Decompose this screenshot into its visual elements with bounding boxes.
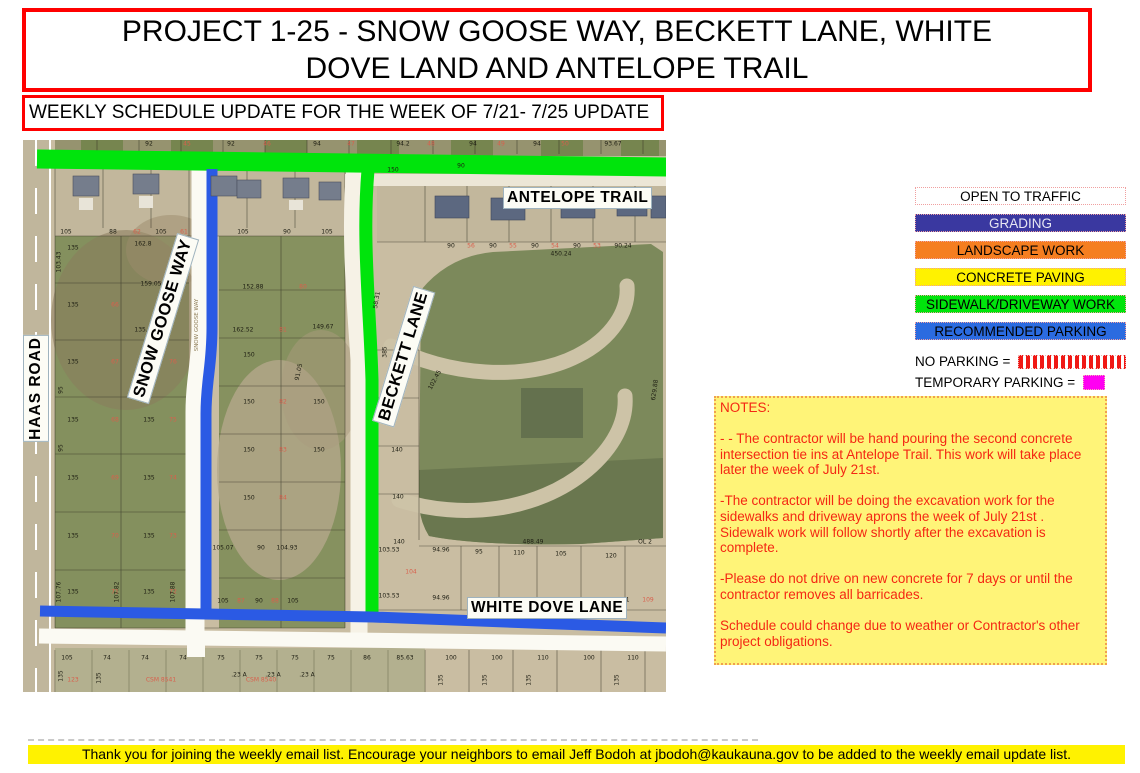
parcel-label: 135 (143, 533, 154, 540)
footer-divider (28, 739, 758, 741)
parcel-label: 84 (279, 495, 287, 502)
parcel-label: 75 (291, 655, 299, 662)
parcel-label: 105 (321, 229, 332, 236)
parcel-label: 47 (347, 141, 355, 148)
road-label-white-dove: WHITE DOVE LANE (467, 597, 627, 619)
parcel-label: 85.63 (396, 655, 413, 662)
project-map: 92929494.2949493.67454647484950105881051… (21, 140, 666, 692)
parcel-label: 50 (561, 141, 569, 148)
parcel-label: 75 (327, 655, 335, 662)
parcel-label: 100 (583, 655, 594, 662)
parcel-label: 94.96 (432, 595, 449, 602)
parcel-label: 140 (392, 494, 403, 501)
no-parking-swatch (1018, 355, 1126, 369)
parcel-label: 74 (103, 655, 111, 662)
parcel-label: SNOW GOOSE WAY (194, 299, 200, 352)
parcel-label: 135 (67, 359, 78, 366)
parcel-label: 75 (217, 655, 225, 662)
parcel-label: 94.96 (432, 547, 449, 554)
parcel-label: OL 2 (638, 539, 652, 546)
temporary-parking-swatch (1083, 375, 1105, 390)
note-paragraph: -Please do not drive on new concrete for… (720, 571, 1101, 603)
legend-item-label: GRADING (989, 216, 1052, 231)
parcel-label: 92 (227, 141, 235, 148)
parcel-label: 140 (393, 539, 404, 546)
parcel-label: 95 (58, 386, 65, 394)
note-paragraph: - - The contractor will be hand pouring … (720, 431, 1101, 478)
parcel-label: 104.93 (277, 545, 298, 552)
parcel-label: 86 (363, 655, 371, 662)
parcel-label: 88 (271, 598, 279, 605)
road-label-antelope: ANTELOPE TRAIL (503, 187, 652, 209)
parcel-label: 103.53 (379, 547, 400, 554)
parcel-label: 107.82 (114, 582, 121, 603)
parcel-label: 105 (60, 229, 71, 236)
parcel-label: 90 (489, 243, 497, 250)
parcel-label: 140 (391, 447, 402, 454)
parcel-label: 135 (67, 589, 78, 596)
parcel-label: 68 (111, 417, 119, 424)
parcel-label: 90.24 (614, 243, 631, 250)
parcel-label: 93.67 (604, 141, 621, 148)
parcel-label: 49 (497, 141, 505, 148)
parcel-label: 152.88 (243, 284, 264, 291)
parcel-label: 162.52 (233, 327, 254, 334)
parcel-label: 74 (169, 475, 177, 482)
parcel-label: 135 (67, 475, 78, 482)
parcel-label: 94 (533, 141, 541, 148)
parcel-label: 150 (243, 495, 254, 502)
parcel-label: 67 (111, 359, 119, 366)
parcel-label: 54 (551, 243, 559, 250)
parcel-label: 105 (217, 598, 228, 605)
title-banner: PROJECT 1-25 - SNOW GOOSE WAY, BECKETT L… (22, 8, 1092, 92)
parcel-label: 107.76 (56, 582, 63, 603)
parcel-label: 103.43 (56, 252, 63, 273)
parcel-label: 48 (427, 141, 435, 148)
parcel-label: .23 A (299, 672, 315, 679)
parcel-label: 53 (593, 243, 601, 250)
parcel-label: 135 (143, 475, 154, 482)
parcel-label: 90 (283, 229, 291, 236)
no-parking-label: NO PARKING = (915, 354, 1010, 369)
parcel-label: 102.45 (427, 369, 443, 391)
parcel-label: 83 (279, 447, 287, 454)
legend: OPEN TO TRAFFIC GRADING LANDSCAPE WORK C… (915, 187, 1126, 390)
footer-text: Thank you for joining the weekly email l… (82, 746, 1071, 762)
parcel-label: 135 (96, 672, 103, 683)
parcel-label: 94 (313, 141, 321, 148)
parcel-label: 81 (279, 327, 287, 334)
parcel-label: 159.05 (141, 281, 162, 288)
parcel-label: 135 (438, 674, 445, 685)
page-title: PROJECT 1-25 - SNOW GOOSE WAY, BECKETT L… (87, 13, 1027, 87)
parcel-label: 56 (467, 243, 475, 250)
parcel-label: 105.07 (213, 545, 234, 552)
parcel-label: 95 (475, 549, 483, 556)
parcel-label: 66 (111, 302, 119, 309)
legend-item: GRADING (915, 214, 1126, 232)
parking-legend: NO PARKING = TEMPORARY PARKING = (915, 354, 1126, 390)
parcel-label: 629.88 (650, 379, 660, 401)
parcel-label: 105 (555, 551, 566, 558)
parcel-label: 150 (243, 399, 254, 406)
parcel-label: 135 (67, 533, 78, 540)
parcel-label: 135 (482, 674, 489, 685)
parcel-label: 73 (169, 533, 177, 540)
parcel-label: 135 (614, 674, 621, 685)
parcel-label: 105 (61, 655, 72, 662)
parcel-label: 123 (67, 677, 78, 684)
parcel-label: 100 (491, 655, 502, 662)
parcel-label: 150 (313, 447, 324, 454)
temporary-parking-label: TEMPORARY PARKING = (915, 375, 1075, 390)
parcel-label: 74 (179, 655, 187, 662)
parcel-label: 103.53 (379, 593, 400, 600)
footer-banner: Thank you for joining the weekly email l… (28, 745, 1125, 764)
parcel-label: 105 (237, 229, 248, 236)
parcel-label: CSM 8541 (146, 677, 176, 684)
page: PROJECT 1-25 - SNOW GOOSE WAY, BECKETT L… (0, 0, 1140, 773)
legend-item: RECOMMENDED PARKING (915, 322, 1126, 340)
parcel-label: 385 (382, 346, 389, 357)
parcel-label: 135 (526, 674, 533, 685)
parcel-label: 110 (513, 550, 524, 557)
parcel-label: .23 A (231, 672, 247, 679)
parcel-label: 92 (145, 141, 153, 148)
parcel-label: 450.24 (551, 251, 572, 258)
parcel-label: 135 (143, 589, 154, 596)
parcel-label: 90 (447, 243, 455, 250)
subtitle-text: WEEKLY SCHEDULE UPDATE FOR THE WEEK OF 7… (29, 102, 649, 123)
subtitle-banner: WEEKLY SCHEDULE UPDATE FOR THE WEEK OF 7… (22, 95, 664, 131)
parcel-label: 110 (537, 655, 548, 662)
parcel-label: 90 (255, 598, 263, 605)
no-parking-row: NO PARKING = (915, 354, 1126, 369)
parcel-label: 135 (143, 417, 154, 424)
parcel-label: 94 (469, 141, 477, 148)
parcel-label: 58.31 (372, 291, 382, 309)
legend-item: CONCRETE PAVING (915, 268, 1126, 286)
parcel-label: 135 (58, 670, 65, 681)
parcel-label: 69 (111, 475, 119, 482)
parcel-label: 162.8 (134, 241, 151, 248)
parcel-label: 135 (67, 245, 78, 252)
parcel-label: 91.05 (294, 363, 304, 381)
parcel-label: 109 (642, 597, 653, 604)
parcel-label: 90 (257, 545, 265, 552)
parcel-label: 120 (605, 553, 616, 560)
parcel-label: 82 (279, 399, 287, 406)
parcel-label: 70 (111, 533, 119, 540)
parcel-label: 55 (509, 243, 517, 250)
notes-heading: NOTES: (720, 400, 1101, 416)
parcel-label: 110 (627, 655, 638, 662)
parcel-label: 488.49 (523, 539, 544, 546)
parcel-label: 150 (243, 447, 254, 454)
parcel-label: 90 (573, 243, 581, 250)
parcel-label: 107.88 (170, 582, 177, 603)
legend-items: OPEN TO TRAFFIC GRADING LANDSCAPE WORK C… (915, 187, 1126, 340)
parcel-label: 135 (67, 302, 78, 309)
legend-item: SIDEWALK/DRIVEWAY WORK (915, 295, 1126, 313)
parcel-label: 100 (445, 655, 456, 662)
legend-item: OPEN TO TRAFFIC (915, 187, 1126, 205)
notes-box: NOTES: - - The contractor will be hand p… (714, 396, 1107, 665)
road-label-haas: HAAS ROAD (23, 335, 49, 442)
legend-item-label: OPEN TO TRAFFIC (960, 189, 1081, 204)
temporary-parking-row: TEMPORARY PARKING = (915, 375, 1126, 390)
parcel-label: 90 (457, 163, 465, 170)
parcel-label: CSM 8540 (246, 677, 276, 684)
parcel-label: 95 (58, 444, 65, 452)
parcel-label: 150 (313, 399, 324, 406)
parcel-label: 76 (169, 359, 177, 366)
parcel-label: 87 (237, 598, 245, 605)
parcel-label: 46 (263, 141, 271, 148)
parcel-label: 75 (169, 417, 177, 424)
legend-item: LANDSCAPE WORK (915, 241, 1126, 259)
parcel-label: 45 (183, 141, 191, 148)
legend-item-label: LANDSCAPE WORK (957, 243, 1085, 258)
note-paragraph: -The contractor will be doing the excava… (720, 493, 1101, 556)
parcel-label: 150 (387, 167, 398, 174)
parcel-label: 135 (67, 417, 78, 424)
parcel-label: 105 (287, 598, 298, 605)
notes-paragraphs: - - The contractor will be hand pouring … (720, 431, 1101, 650)
note-paragraph: Schedule could change due to weather or … (720, 618, 1101, 650)
parcel-label: 88 (109, 229, 117, 236)
legend-item-label: RECOMMENDED PARKING (934, 324, 1106, 339)
legend-item-label: CONCRETE PAVING (956, 270, 1085, 285)
parcel-label: 105 (155, 229, 166, 236)
parcel-label: 150 (243, 352, 254, 359)
parcel-label: 90 (531, 243, 539, 250)
parcel-label: 149.67 (313, 324, 334, 331)
parcel-label: 75 (255, 655, 263, 662)
parcel-label: 94.2 (396, 141, 409, 148)
parcel-label: 80 (299, 284, 307, 291)
legend-item-label: SIDEWALK/DRIVEWAY WORK (926, 297, 1115, 312)
parcel-label: 104 (405, 569, 416, 576)
parcel-label: 62 (133, 229, 141, 236)
parcel-label: 74 (141, 655, 149, 662)
